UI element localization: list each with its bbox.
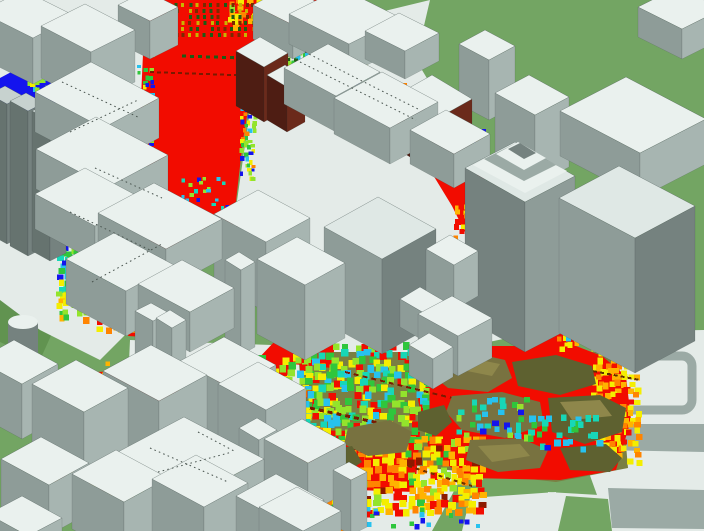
building — [559, 166, 695, 373]
scene-svg — [0, 0, 704, 531]
3d-city-noise-map-viewport[interactable] — [0, 0, 704, 531]
